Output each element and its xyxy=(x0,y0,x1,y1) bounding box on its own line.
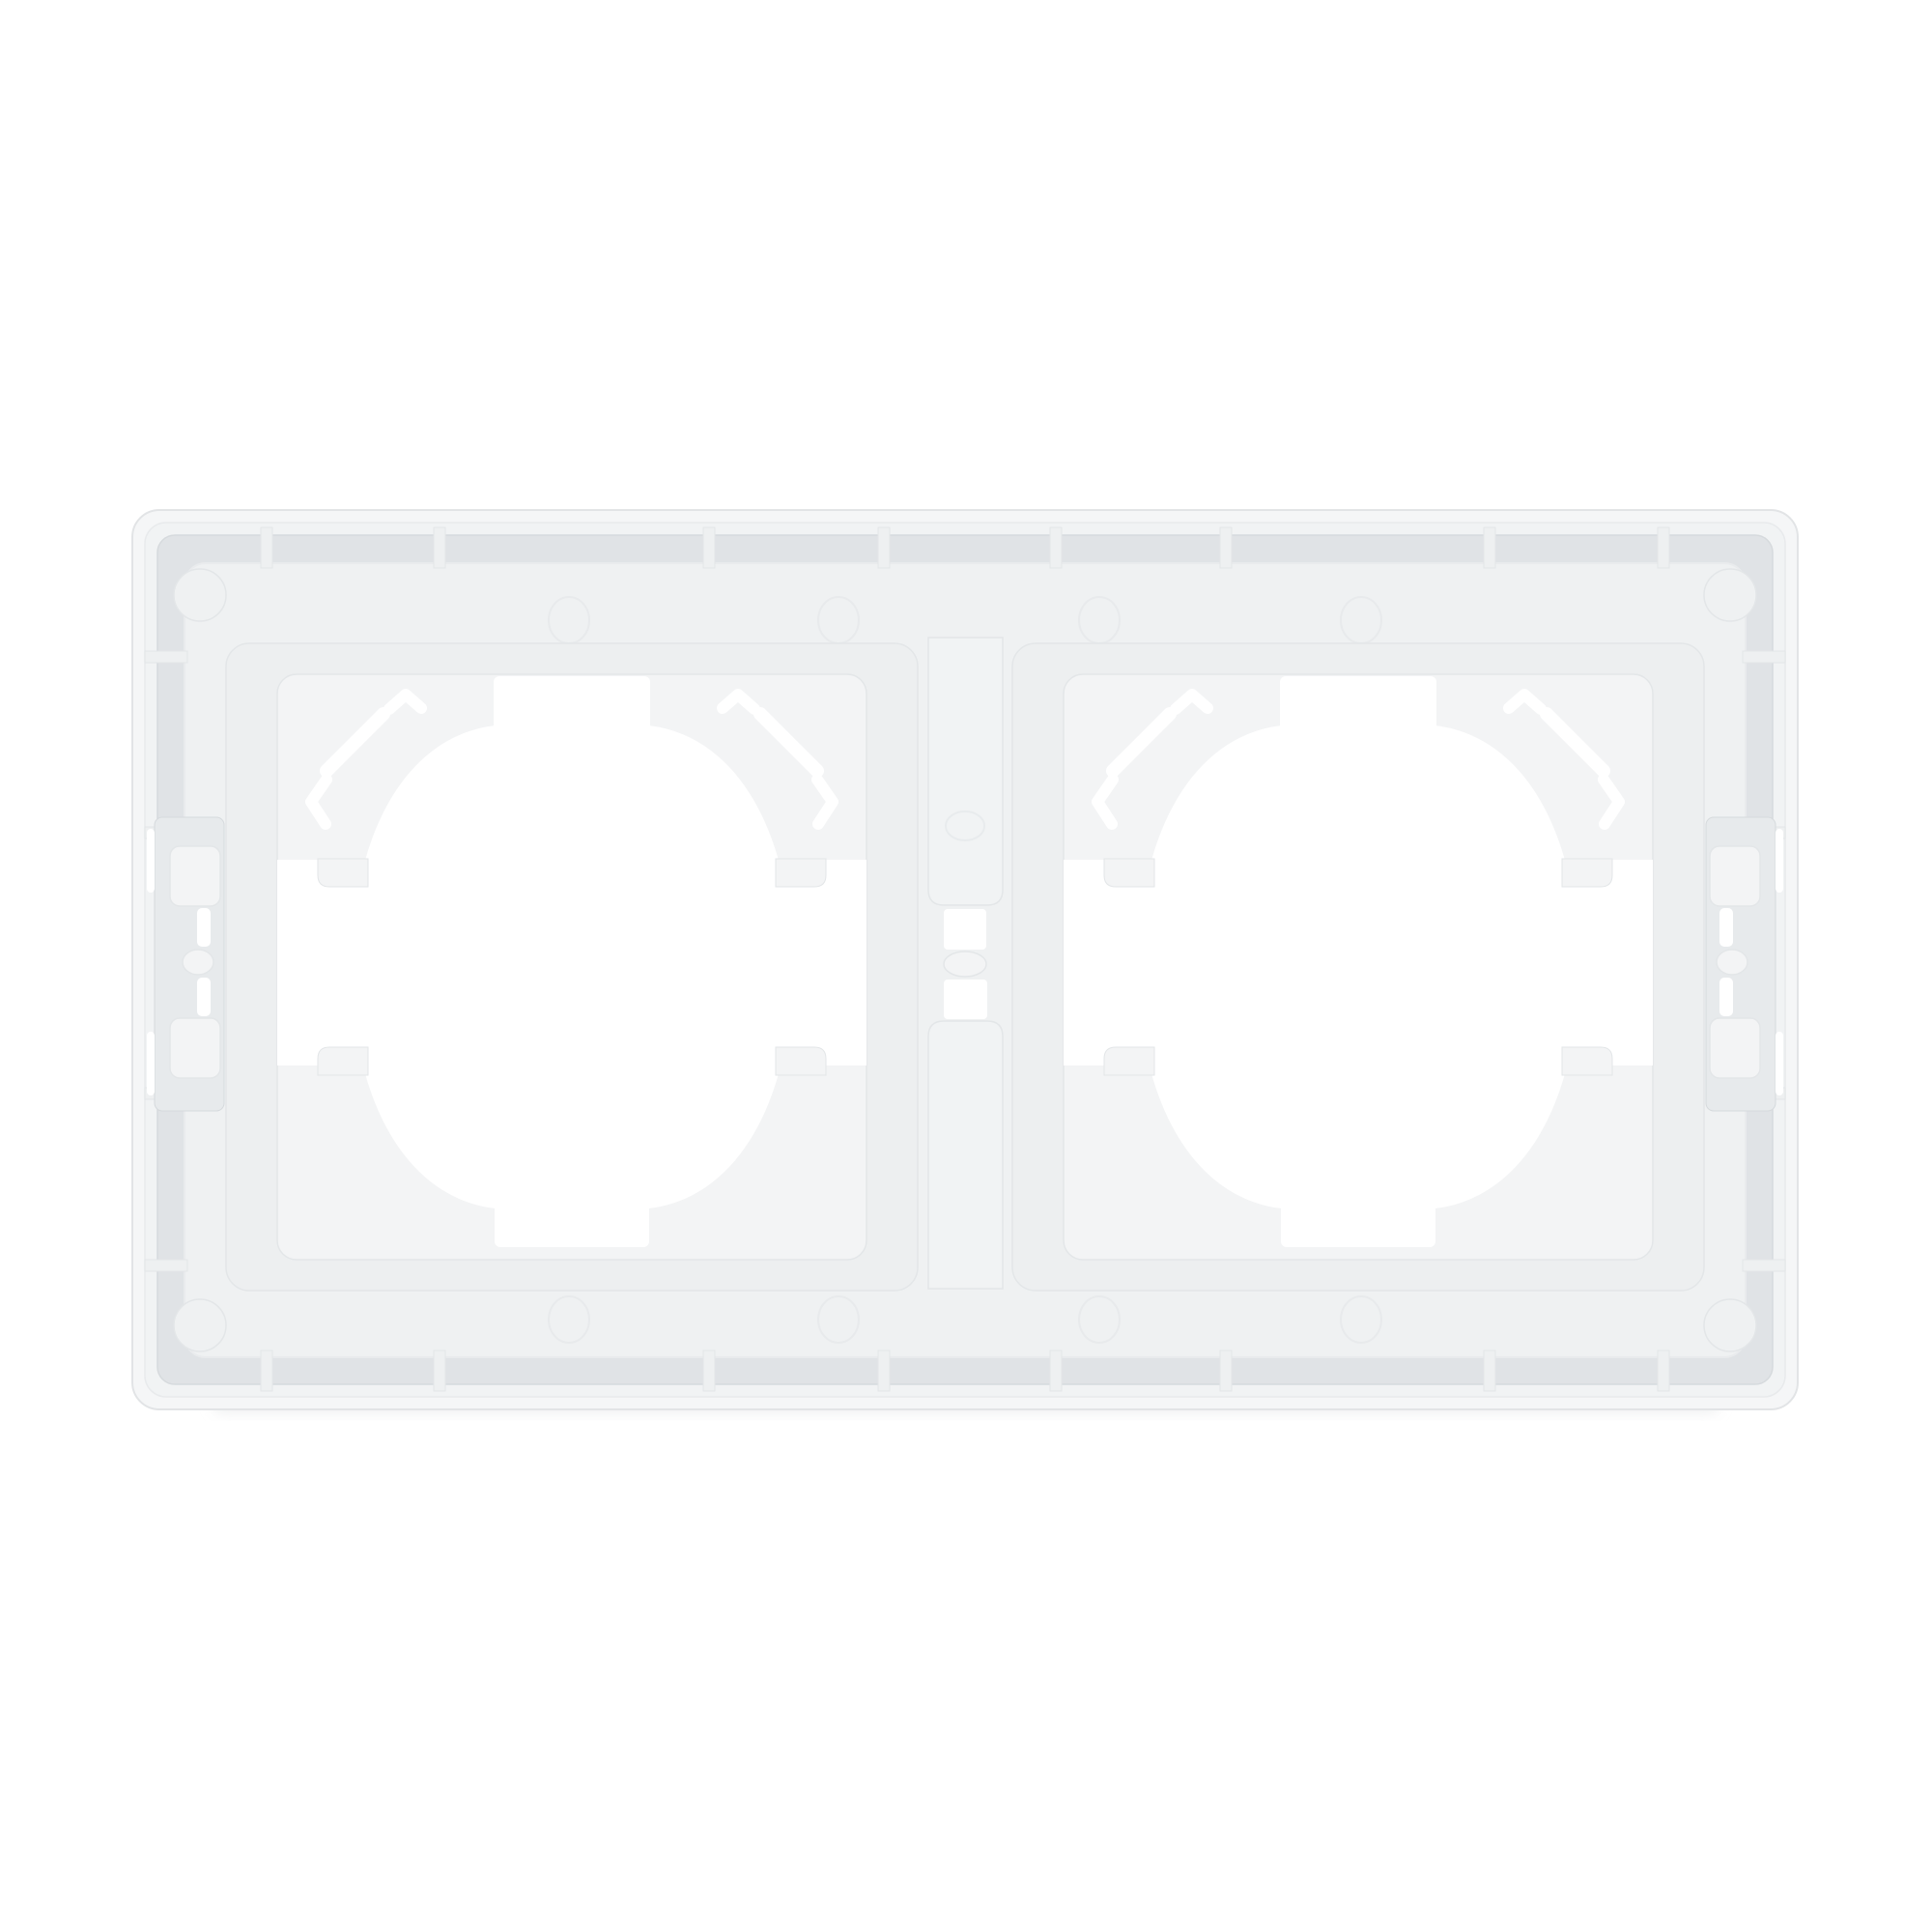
side-latch-right xyxy=(1706,817,1783,1111)
coupling-hole-lower xyxy=(944,980,987,1019)
coupling-tongue-upper xyxy=(928,638,1003,905)
coupling-tongue-lower xyxy=(928,1021,1003,1289)
coupling-nub xyxy=(944,952,986,977)
socket-module-right xyxy=(1012,643,1704,1291)
product-photo xyxy=(0,0,1932,1932)
coupling-hole-upper xyxy=(944,909,986,950)
socket-frame-rear-illustration xyxy=(0,0,1932,1932)
socket-module-left xyxy=(226,643,918,1291)
side-latch-left xyxy=(147,817,224,1111)
